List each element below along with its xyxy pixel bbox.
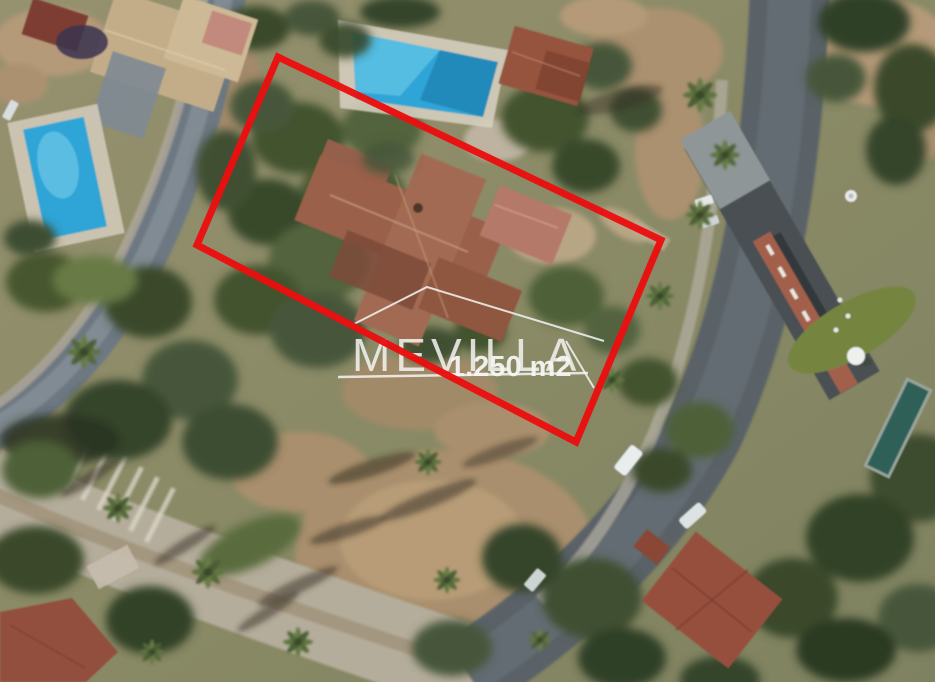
tree	[806, 54, 866, 102]
garden-chair	[834, 328, 839, 333]
palm-tree	[434, 567, 461, 594]
palm-tree	[710, 140, 740, 170]
palm-tree	[686, 201, 715, 230]
carport-shadow	[56, 25, 108, 59]
tree	[552, 139, 620, 193]
tree	[666, 402, 734, 458]
palm-tree	[646, 282, 675, 311]
aerial-photo: MEVILLA 1.250 m2	[0, 0, 935, 682]
palm-tree	[528, 628, 552, 652]
palm-tree	[683, 78, 718, 113]
tree	[319, 22, 371, 58]
rooftop-unit	[849, 194, 854, 199]
area-label: 1.250 m2	[449, 351, 572, 383]
tree	[796, 618, 896, 682]
satellite-scene: MEVILLA 1.250 m2	[0, 0, 935, 682]
palm-tree	[415, 449, 442, 476]
umbrella	[847, 347, 865, 365]
tree	[482, 524, 562, 592]
tree	[362, 142, 414, 174]
tree	[4, 220, 56, 256]
tree	[412, 620, 492, 676]
palm-tree	[139, 639, 165, 665]
palm-tree	[103, 493, 133, 523]
lawn	[53, 256, 137, 304]
palm-tree	[67, 335, 102, 370]
palm-tree	[283, 627, 313, 657]
tree	[618, 358, 678, 406]
palm-tree	[192, 556, 225, 589]
garden-chair	[838, 298, 843, 303]
chimney	[413, 203, 423, 213]
tree	[182, 404, 278, 480]
garden-chair	[846, 314, 851, 319]
tree	[866, 115, 926, 185]
